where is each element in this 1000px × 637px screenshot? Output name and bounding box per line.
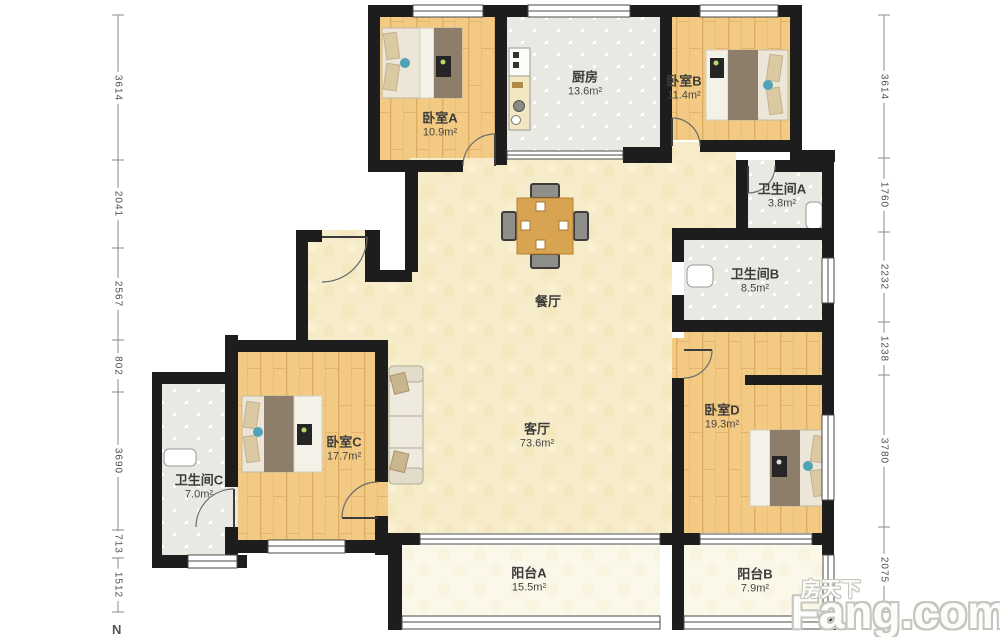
- dim-left-1: 3614: [113, 72, 124, 104]
- dim-right-5: 3780: [879, 435, 890, 467]
- bed-d-icon: [750, 430, 832, 506]
- dim-right-1: 3614: [879, 71, 890, 103]
- dim-right-6: 2075: [879, 554, 890, 586]
- bed-b-icon: [706, 50, 788, 120]
- bed-c-icon: [242, 396, 322, 472]
- fang-watermark: 房天下 Fang.com: [791, 585, 1000, 637]
- room-label-balcony-a: 阳台A15.5m²: [511, 566, 546, 595]
- kitchen-counter-icon: [509, 48, 530, 130]
- room-label-bathroom-c: 卫生间C7.0m²: [175, 473, 223, 502]
- room-label-dining: 餐厅: [535, 294, 561, 310]
- north-indicator: N: [112, 622, 121, 637]
- floorplan-page: 卧室A10.9m² 厨房13.6m² 卧室B11.4m² 卫生间A3.8m² 卫…: [0, 0, 1000, 637]
- dim-left-3: 2567: [113, 278, 124, 310]
- dim-right-3: 2232: [879, 261, 890, 293]
- room-label-bathroom-a: 卫生间A3.8m²: [758, 182, 806, 211]
- room-label-bedroom-c: 卧室C17.7m²: [326, 435, 361, 464]
- dim-left-6: 713: [113, 531, 124, 557]
- dim-left-4: 802: [113, 353, 124, 379]
- dim-left-2: 2041: [113, 188, 124, 220]
- room-label-kitchen: 厨房13.6m²: [568, 70, 602, 99]
- dim-right-2: 1760: [879, 179, 890, 211]
- floorplan-drawing: [0, 0, 1000, 637]
- fang-watermark-cn: 房天下: [801, 573, 861, 602]
- room-label-bedroom-b: 卧室B11.4m²: [666, 74, 701, 103]
- dim-right-4: 1238: [879, 333, 890, 365]
- dim-left-7: 1512: [113, 569, 124, 601]
- sofa-icon: [389, 366, 423, 484]
- room-label-bedroom-a: 卧室A10.9m²: [422, 111, 457, 140]
- dim-left-5: 3690: [113, 445, 124, 477]
- bed-a-icon: [382, 28, 462, 98]
- room-label-balcony-b: 阳台B7.9m²: [737, 567, 772, 596]
- room-label-bedroom-d: 卧室D19.3m²: [704, 403, 739, 432]
- room-label-bathroom-b: 卫生间B8.5m²: [731, 267, 779, 296]
- room-label-living: 客厅73.6m²: [520, 422, 554, 451]
